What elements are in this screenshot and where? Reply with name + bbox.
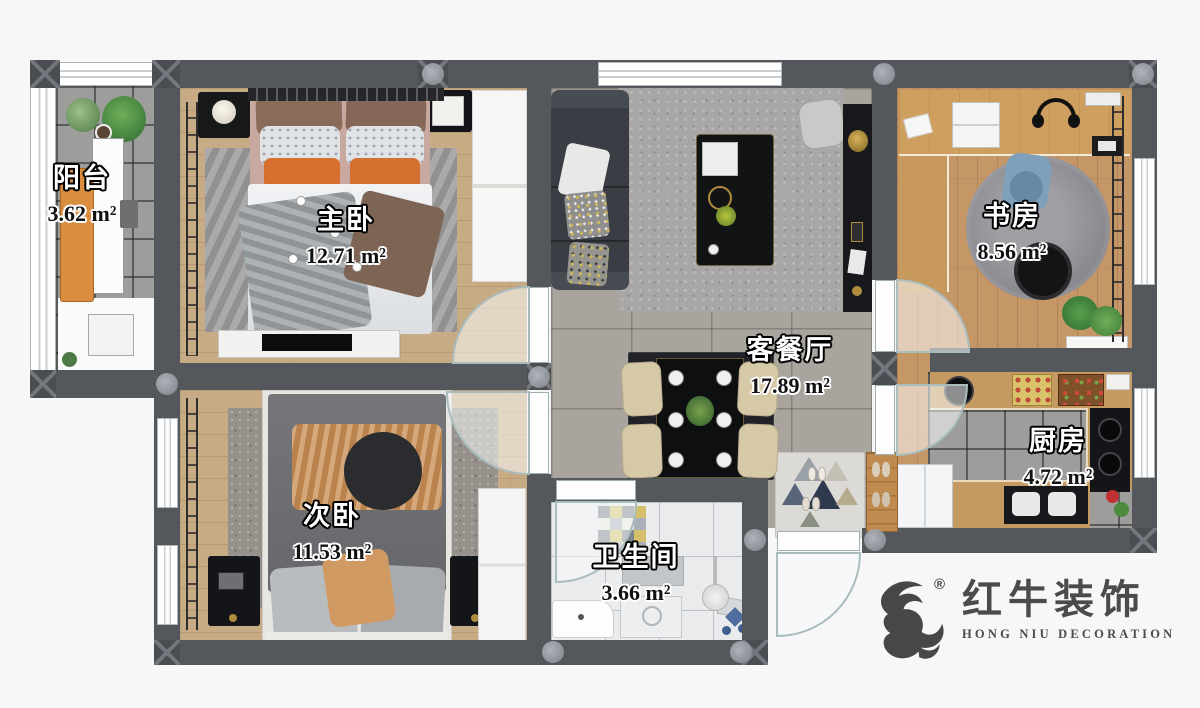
entry-door-arc <box>777 553 860 636</box>
room-name: 次卧 <box>293 494 372 533</box>
study-door <box>875 280 895 352</box>
logo-text-en: HONG NIU DECORATION <box>962 627 1175 642</box>
room-area: 3.66 m² <box>593 580 680 606</box>
second-bedroom-door <box>529 392 549 474</box>
room-label-bathroom: 卫生间 3.66 m² <box>593 535 680 606</box>
registered-mark: ® <box>934 576 945 593</box>
room-name: 厨房 <box>1024 419 1093 458</box>
room-label-living-dining: 客餐厅 17.89 m² <box>747 328 834 399</box>
kitchen-door-arc <box>897 385 967 455</box>
room-area: 12.71 m² <box>306 243 386 269</box>
room-label-second-bedroom: 次卧 11.53 m² <box>293 494 372 565</box>
room-label-study: 书房 8.56 m² <box>978 194 1047 265</box>
entry-door <box>777 531 860 551</box>
room-area: 4.72 m² <box>1024 464 1093 490</box>
bull-logo-icon: ® <box>872 578 952 662</box>
study-door-arc <box>897 280 969 352</box>
room-name: 阳台 <box>48 156 117 195</box>
kitchen-door <box>875 385 895 455</box>
room-area: 8.56 m² <box>978 239 1047 265</box>
bathroom-door <box>556 480 636 500</box>
room-label-kitchen: 厨房 4.72 m² <box>1024 419 1093 490</box>
company-logo: ® 红牛装饰 HONG NIU DECORATION <box>872 578 1175 662</box>
room-area: 11.53 m² <box>293 539 372 565</box>
room-label-balcony: 阳台 3.62 m² <box>48 156 117 227</box>
room-area: 3.62 m² <box>48 201 117 227</box>
room-name: 书房 <box>978 194 1047 233</box>
room-name: 主卧 <box>306 198 386 237</box>
room-area: 17.89 m² <box>747 373 834 399</box>
master-door-arc <box>453 287 529 363</box>
room-name: 卫生间 <box>593 535 680 574</box>
floor-plan: 阳台 3.62 m² 主卧 12.71 m² 次卧 11.53 m² 书房 8.… <box>0 0 1200 708</box>
master-door <box>529 287 549 363</box>
logo-text-zh: 红牛装饰 <box>962 578 1175 622</box>
second-bedroom-door-arc <box>447 392 529 474</box>
room-label-master-bedroom: 主卧 12.71 m² <box>306 198 386 269</box>
room-name: 客餐厅 <box>747 328 834 367</box>
